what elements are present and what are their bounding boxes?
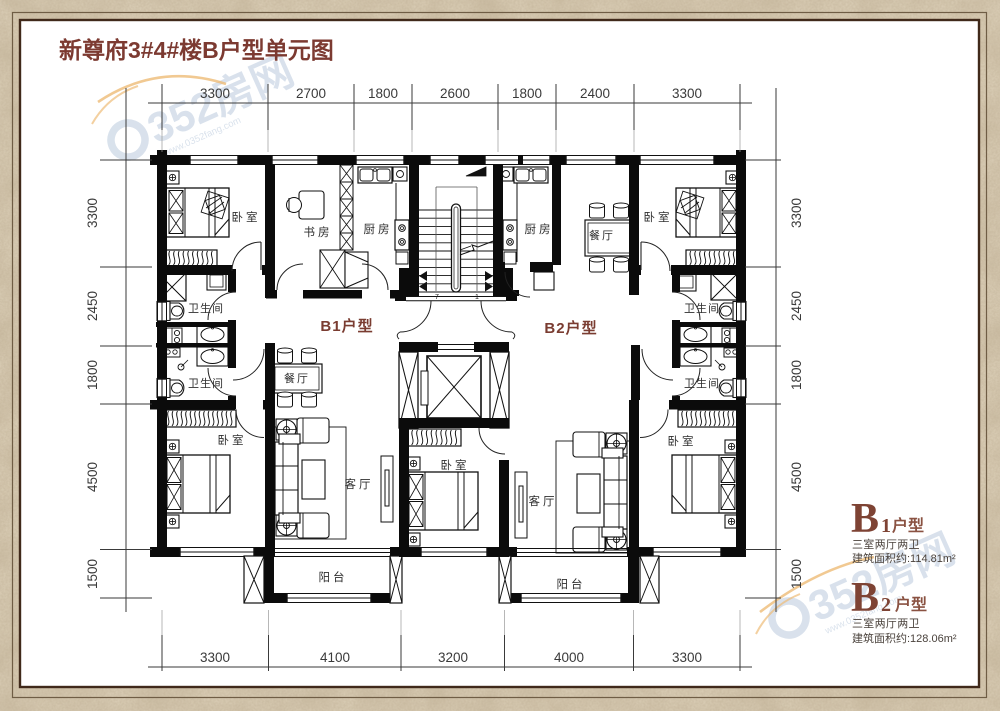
svg-text:厨房: 厨房 [364, 223, 393, 236]
svg-text:3300: 3300 [200, 650, 230, 665]
svg-text:卫生间: 卫生间 [188, 301, 224, 315]
svg-text:7: 7 [435, 294, 439, 301]
svg-text:2600: 2600 [440, 86, 470, 101]
svg-text:3300: 3300 [200, 86, 230, 101]
svg-text:阳台: 阳台 [319, 570, 348, 584]
svg-text:4500: 4500 [789, 462, 804, 492]
svg-text:三室两厅两卫: 三室两厅两卫 [852, 537, 920, 551]
svg-text:卫生间: 卫生间 [188, 376, 224, 390]
svg-text:新尊府3#4#楼B户型单元图: 新尊府3#4#楼B户型单元图 [59, 37, 334, 63]
svg-text:4500: 4500 [85, 462, 100, 492]
svg-text:1: 1 [881, 515, 891, 537]
svg-text:卧室: 卧室 [441, 458, 470, 472]
svg-text:3300: 3300 [789, 198, 804, 228]
svg-text:4000: 4000 [554, 650, 584, 665]
svg-text:3300: 3300 [85, 198, 100, 228]
svg-text:2400: 2400 [580, 86, 610, 101]
svg-text:1800: 1800 [789, 360, 804, 390]
svg-text:卫生间: 卫生间 [684, 376, 720, 390]
svg-text:1500: 1500 [789, 559, 804, 589]
svg-text:客厅: 客厅 [345, 477, 374, 491]
svg-text:书房: 书房 [304, 226, 333, 239]
svg-text:卧室: 卧室 [668, 434, 697, 448]
svg-text:3300: 3300 [672, 650, 702, 665]
svg-text:B2户型: B2户型 [544, 319, 597, 337]
svg-text:卫生间: 卫生间 [684, 301, 720, 315]
svg-text:1500: 1500 [85, 559, 100, 589]
svg-text:卧室: 卧室 [232, 210, 261, 224]
svg-text:3300: 3300 [672, 86, 702, 101]
svg-text:1: 1 [475, 294, 479, 301]
svg-text:户型: 户型 [892, 516, 924, 535]
svg-text:B: B [851, 496, 879, 542]
svg-text:户型: 户型 [895, 595, 927, 614]
svg-text:B: B [851, 575, 879, 621]
svg-text:4100: 4100 [320, 650, 350, 665]
svg-text:建筑面积约:128.06m²: 建筑面积约:128.06m² [852, 631, 957, 645]
svg-text:餐厅: 餐厅 [284, 371, 310, 385]
svg-text:B1户型: B1户型 [320, 317, 373, 335]
svg-text:客厅: 客厅 [529, 494, 558, 508]
svg-text:卧室: 卧室 [218, 433, 247, 447]
svg-text:3200: 3200 [438, 650, 468, 665]
svg-text:厨房: 厨房 [525, 223, 554, 236]
svg-text:阳台: 阳台 [557, 577, 586, 591]
svg-text:建筑面积约:114.81m²: 建筑面积约:114.81m² [852, 551, 956, 565]
svg-text:餐厅: 餐厅 [589, 228, 615, 242]
svg-text:1800: 1800 [512, 86, 542, 101]
svg-text:1800: 1800 [368, 86, 398, 101]
svg-text:卧室: 卧室 [644, 210, 673, 224]
svg-text:2700: 2700 [296, 86, 326, 101]
svg-text:2450: 2450 [789, 291, 804, 321]
svg-text:2450: 2450 [85, 291, 100, 321]
svg-text:1800: 1800 [85, 360, 100, 390]
svg-text:2: 2 [881, 594, 891, 616]
svg-text:三室两厅两卫: 三室两厅两卫 [852, 616, 920, 630]
